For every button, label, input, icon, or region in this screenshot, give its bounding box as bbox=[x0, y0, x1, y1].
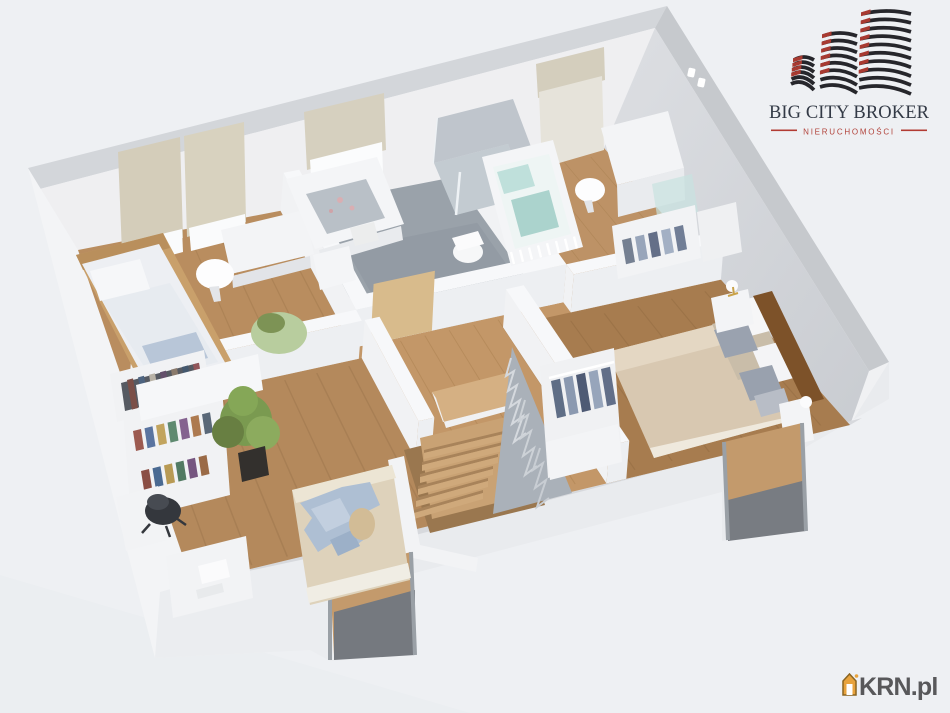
svg-text:KRN.pl: KRN.pl bbox=[859, 673, 938, 701]
svg-text:NIERUCHOMOŚCI: NIERUCHOMOŚCI bbox=[803, 128, 895, 137]
svg-text:BIG CITY BROKER: BIG CITY BROKER bbox=[769, 103, 930, 123]
